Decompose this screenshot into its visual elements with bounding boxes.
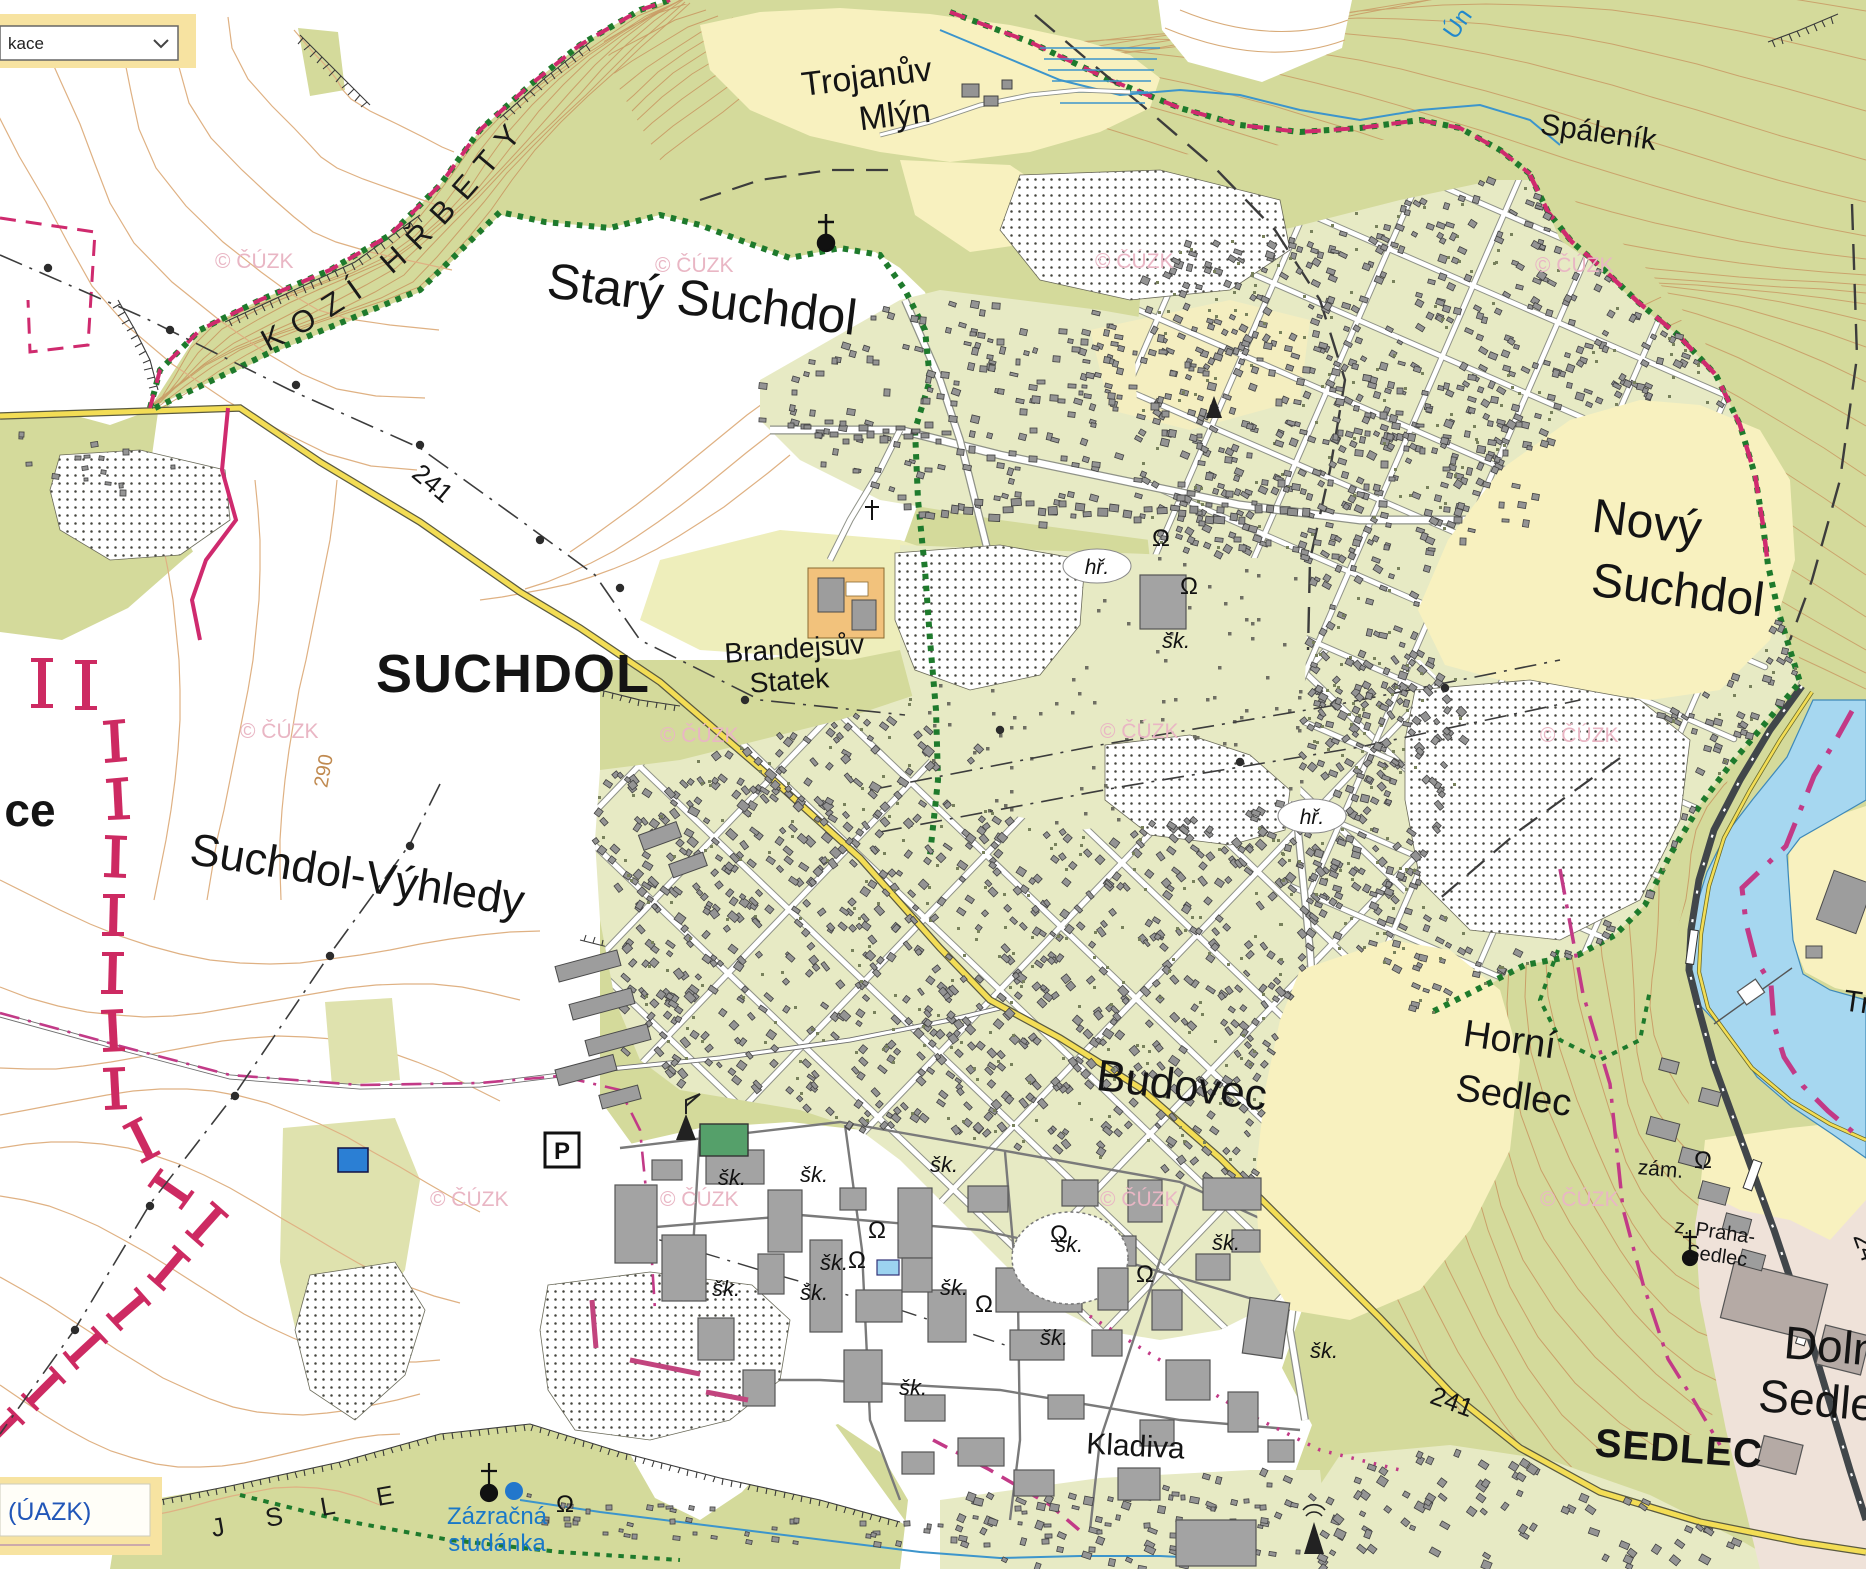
svg-text:Tr: Tr	[1842, 984, 1866, 1020]
svg-text:© ČÚZK: © ČÚZK	[1100, 720, 1178, 743]
svg-text:Ω: Ω	[975, 1291, 993, 1318]
svg-text:© ČÚZK: © ČÚZK	[655, 254, 733, 277]
svg-text:© ČÚZK: © ČÚZK	[1540, 1188, 1618, 1211]
svg-text:© ČÚZK: © ČÚZK	[430, 1188, 508, 1211]
svg-text:šk.: šk.	[820, 1250, 848, 1275]
svg-text:Ω: Ω	[1136, 1261, 1154, 1288]
svg-text:zám.: zám.	[1637, 1156, 1684, 1183]
svg-text:šk.: šk.	[1055, 1232, 1083, 1257]
svg-text:šk.: šk.	[1310, 1338, 1338, 1363]
svg-text:Doln: Doln	[1782, 1316, 1866, 1376]
svg-text:Ω: Ω	[1694, 1147, 1712, 1174]
svg-text:hř.: hř.	[1085, 556, 1110, 579]
svg-text:© ČÚZK: © ČÚZK	[215, 250, 293, 273]
svg-text:Ω: Ω	[848, 1247, 866, 1274]
svg-text:šk.: šk.	[940, 1275, 968, 1300]
svg-text:šk.: šk.	[1212, 1230, 1240, 1255]
svg-text:SUCHDOL: SUCHDOL	[376, 644, 650, 704]
svg-text:Zázračná: Zázračná	[447, 1503, 548, 1530]
svg-text:© ČÚZK: © ČÚZK	[240, 720, 318, 743]
svg-text:© ČÚZK: © ČÚZK	[1095, 250, 1173, 273]
svg-text:(ÚAZK): (ÚAZK)	[8, 1497, 91, 1526]
svg-text:© ČÚZK: © ČÚZK	[1540, 724, 1618, 747]
svg-text:© ČÚZK: © ČÚZK	[1100, 1188, 1178, 1211]
svg-text:Statek: Statek	[749, 662, 831, 699]
svg-text:šk.: šk.	[718, 1165, 746, 1190]
svg-text:šk.: šk.	[800, 1162, 828, 1187]
svg-text:šk.: šk.	[1162, 628, 1190, 653]
svg-text:šk.: šk.	[1040, 1325, 1068, 1350]
svg-text:šk.: šk.	[930, 1152, 958, 1177]
svg-text:šk.: šk.	[800, 1280, 828, 1305]
svg-text:Kladiva: Kladiva	[1085, 1427, 1185, 1465]
svg-text:Ω: Ω	[868, 1217, 886, 1244]
svg-text:šk.: šk.	[899, 1375, 927, 1400]
svg-text:Ω: Ω	[556, 1491, 574, 1518]
svg-text:studánka: studánka	[448, 1530, 546, 1557]
svg-text:© ČÚZK: © ČÚZK	[660, 724, 738, 747]
svg-text:© ČÚZK: © ČÚZK	[660, 1188, 738, 1211]
svg-text:Ω: Ω	[1152, 525, 1170, 552]
svg-text:kace: kace	[8, 34, 44, 53]
svg-text:© ČÚZK: © ČÚZK	[1535, 254, 1613, 277]
svg-text:hř.: hř.	[1300, 806, 1325, 829]
svg-text:šk.: šk.	[712, 1276, 740, 1301]
svg-text:Sedle: Sedle	[1757, 1369, 1866, 1431]
svg-text:Ω: Ω	[1180, 573, 1198, 600]
svg-text:P: P	[554, 1138, 570, 1165]
svg-text:ce: ce	[4, 784, 55, 836]
